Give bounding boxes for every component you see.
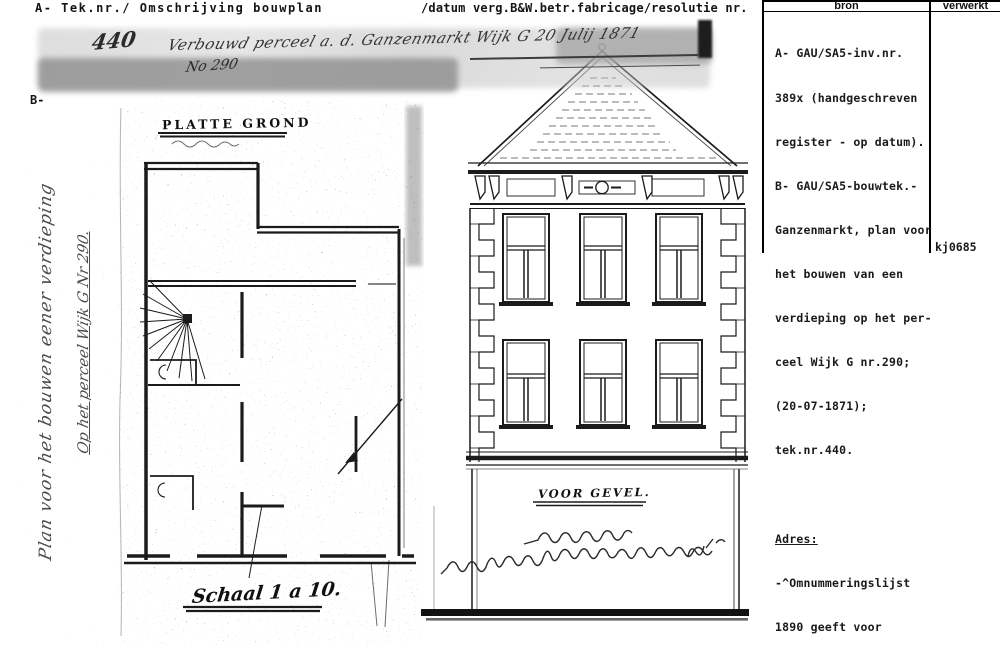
side-annotation-line1: Plan voor het bouwen eener verdieping	[36, 128, 56, 562]
section-b-marker: B-	[30, 93, 44, 107]
bron-line: -^Omnummeringslijst	[775, 576, 928, 591]
archive-scan-page: A- Tek.nr./ Omschrijving bouwplan /datum…	[0, 0, 1000, 648]
bron-line: 389x (handgeschreven	[775, 91, 928, 106]
register-number: 440	[90, 26, 138, 55]
bron-line: Ganzenmarkt, plan voor	[775, 223, 928, 238]
facade-title: VOOR GEVEL.	[538, 485, 651, 501]
bron-line: tek.nr.440.	[775, 443, 928, 458]
register-strip-inkblot	[698, 20, 712, 58]
bron-line: 1890 geeft voor	[775, 620, 928, 635]
bron-line-adres: Adres:	[775, 532, 928, 547]
scan-noise	[0, 0, 762, 648]
table-column-divider	[929, 0, 931, 253]
bron-column-header: bron	[764, 0, 929, 11]
verwerkt-column-header: verwerkt	[931, 0, 1000, 11]
bron-header-label: bron	[834, 0, 858, 12]
verwerkt-header-label: verwerkt	[943, 0, 988, 12]
table-left-border	[762, 0, 764, 253]
bron-line: register - op datum).	[775, 135, 928, 150]
bron-line-blank	[775, 488, 928, 503]
side-annotation-line2: Op het perceel Wijk G Nr 290.	[76, 232, 92, 455]
plan-title: PLATTE GROND	[162, 115, 312, 133]
bron-column-text: A- GAU/SA5-inv.nr. 389x (handgeschreven …	[775, 17, 928, 648]
scan-drawing-layer	[0, 0, 762, 648]
bron-line: verdieping op het per-	[775, 311, 928, 326]
header-right-label: /datum verg.B&W.betr.fabricage/resolutie…	[421, 1, 748, 15]
bron-line: B- GAU/SA5-bouwtek.-	[775, 179, 928, 194]
register-strip-darkblob-left	[38, 58, 458, 92]
bron-line: A- GAU/SA5-inv.nr.	[775, 46, 928, 61]
bron-line: (20-07-1871);	[775, 399, 928, 414]
bron-line: ceel Wijk G nr.290;	[775, 355, 928, 370]
header-left-label: A- Tek.nr./ Omschrijving bouwplan	[35, 1, 323, 15]
verwerkt-code: kj0685	[935, 240, 977, 254]
bron-line: het bouwen van een	[775, 267, 928, 282]
